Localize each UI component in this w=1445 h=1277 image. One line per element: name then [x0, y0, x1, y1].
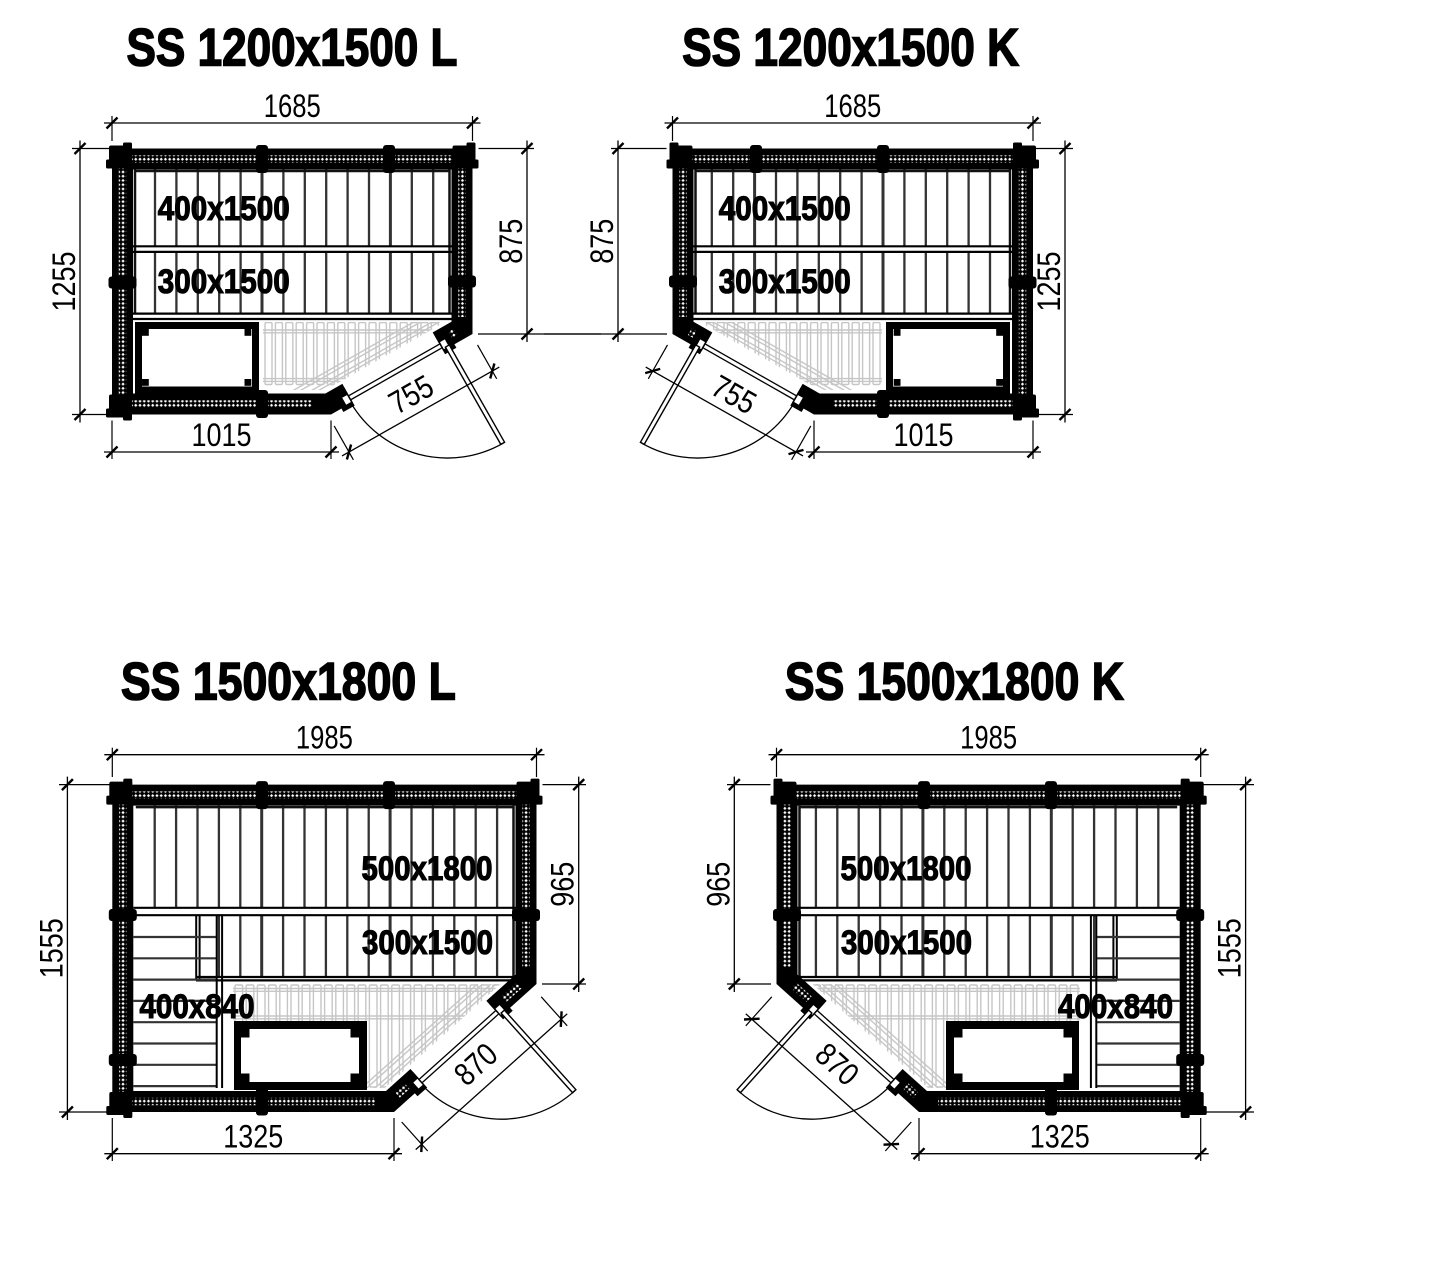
svg-text:1985: 1985 — [296, 720, 353, 756]
svg-text:400x840: 400x840 — [1058, 988, 1173, 1026]
svg-text:1685: 1685 — [264, 88, 321, 124]
svg-text:1015: 1015 — [192, 417, 252, 453]
svg-text:875: 875 — [493, 219, 529, 264]
svg-text:300x1500: 300x1500 — [719, 263, 851, 301]
svg-text:1685: 1685 — [824, 88, 881, 124]
svg-text:1555: 1555 — [1212, 918, 1248, 978]
svg-text:SS 1500x1800 L: SS 1500x1800 L — [121, 653, 456, 712]
svg-text:SS 1200x1500 K: SS 1200x1500 K — [682, 19, 1019, 78]
svg-text:300x1500: 300x1500 — [158, 263, 290, 301]
svg-text:1255: 1255 — [1031, 252, 1067, 312]
svg-text:300x1500: 300x1500 — [841, 924, 972, 962]
svg-text:1555: 1555 — [33, 918, 69, 978]
svg-text:1985: 1985 — [960, 720, 1017, 756]
svg-text:965: 965 — [700, 862, 736, 907]
svg-text:1255: 1255 — [46, 252, 82, 312]
svg-text:400x1500: 400x1500 — [158, 190, 290, 228]
svg-text:1015: 1015 — [894, 417, 954, 453]
svg-text:500x1800: 500x1800 — [362, 850, 493, 888]
svg-text:SS 1500x1800 K: SS 1500x1800 K — [785, 653, 1124, 712]
svg-text:300x1500: 300x1500 — [362, 924, 493, 962]
svg-text:SS 1200x1500 L: SS 1200x1500 L — [127, 19, 458, 78]
svg-text:1325: 1325 — [223, 1119, 283, 1155]
svg-text:400x1500: 400x1500 — [719, 190, 851, 228]
svg-text:400x840: 400x840 — [140, 988, 255, 1026]
svg-text:965: 965 — [545, 862, 581, 907]
svg-text:1325: 1325 — [1030, 1119, 1090, 1155]
svg-text:500x1800: 500x1800 — [841, 850, 972, 888]
svg-text:875: 875 — [584, 219, 620, 264]
